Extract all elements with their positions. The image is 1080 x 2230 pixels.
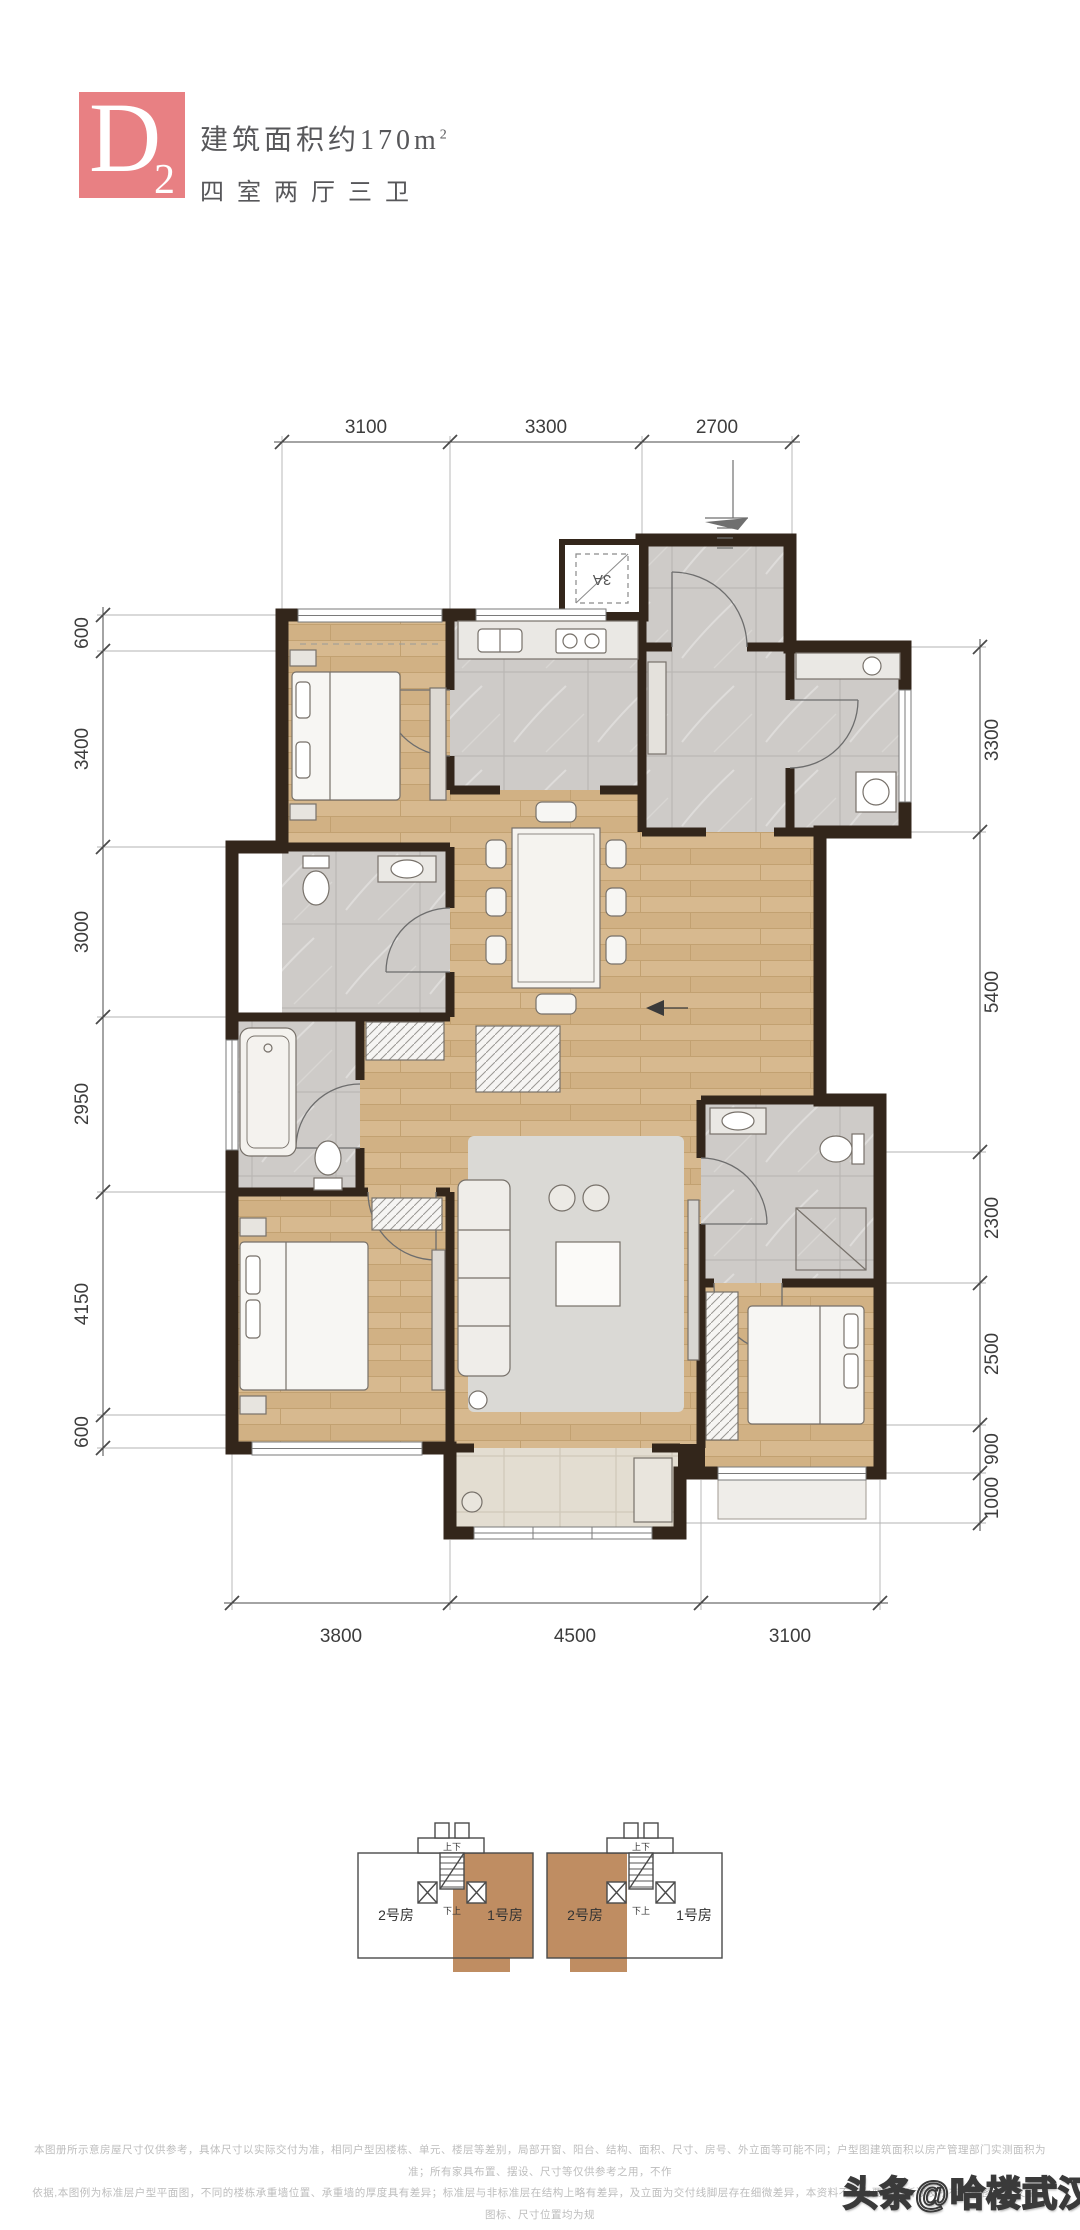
dim-right-4: 2500 <box>982 1333 1003 1375</box>
highlighted-unit <box>547 1853 627 1958</box>
stair-label-top: 上下 <box>443 1842 461 1852</box>
unit-badge: D 2 <box>79 92 185 198</box>
bathtub <box>240 1028 296 1156</box>
bedroom2-dresser <box>430 688 446 800</box>
hall-cabinet <box>476 1026 560 1092</box>
nightstand <box>240 1218 266 1236</box>
floor-lamp <box>469 1391 487 1409</box>
toilet <box>820 1136 852 1162</box>
keyplan-building-right: 上下 下上 2号房 1号房 <box>547 1823 722 1972</box>
keyplan-building-left: 上下 下上 2号房 1号房 <box>358 1823 533 1972</box>
elevator <box>467 1882 486 1903</box>
dim-left-4: 2950 <box>72 1083 93 1125</box>
elevator <box>418 1882 437 1903</box>
tv-console <box>688 1200 699 1360</box>
unit-label-4: 1号房 <box>676 1907 712 1923</box>
stair-label-bottom: 下上 <box>443 1906 461 1916</box>
bedroom3-bed <box>706 1292 864 1440</box>
plant <box>462 1492 482 1512</box>
dim-left-2: 3400 <box>72 728 93 770</box>
area-text: 建筑面积约170m2 <box>200 118 451 158</box>
flue-3a: 3A <box>562 542 642 615</box>
area-sup: 2 <box>440 128 451 143</box>
balcony-glazing <box>474 1527 652 1539</box>
linen-closet <box>366 1022 444 1060</box>
kitchen-counter <box>458 621 638 659</box>
unit-label-3: 2号房 <box>567 1907 603 1923</box>
watermark: 头条@哈楼武汉 <box>843 2166 1080 2217</box>
unit-number: 2 <box>154 156 175 204</box>
header-text: 建筑面积约170m2 四室两厅三卫 <box>200 118 451 207</box>
dim-bottom-3: 3100 <box>769 1626 811 1647</box>
master-wardrobe <box>372 1198 442 1230</box>
master-window <box>252 1442 422 1455</box>
shoe-cabinet <box>648 662 666 754</box>
dim-top-3: 2700 <box>696 417 738 438</box>
dim-right-1: 3300 <box>982 719 1003 761</box>
layout-text: 四室两厅三卫 <box>200 172 451 207</box>
dim-left-6: 600 <box>72 1416 93 1448</box>
bedroom3-wardrobe <box>706 1292 738 1440</box>
stair-label-bottom: 下上 <box>632 1906 650 1916</box>
wall-chunk <box>678 1444 705 1477</box>
washer <box>856 772 896 812</box>
highlighted-unit <box>453 1853 533 1958</box>
dim-bottom-1: 3800 <box>320 1626 362 1647</box>
unit-label-1: 2号房 <box>378 1907 414 1923</box>
nightstand <box>290 804 316 820</box>
dim-right-2: 5400 <box>982 971 1003 1013</box>
bedroom2-window <box>298 609 442 622</box>
dim-right-6: 1000 <box>982 1477 1003 1519</box>
floor-plan: 3A <box>0 400 1080 2020</box>
dim-left-5: 4150 <box>72 1283 93 1325</box>
nightstand <box>290 650 316 666</box>
unit-letter: D <box>89 78 161 198</box>
living-room-set <box>458 1136 699 1412</box>
bedroom3-bay <box>718 1479 866 1519</box>
floorplan-page: D 2 建筑面积约170m2 四室两厅三卫 <box>0 0 1080 2230</box>
flue-label: 3A <box>593 571 611 588</box>
bath2-window <box>226 1040 238 1150</box>
dim-left-1: 600 <box>72 617 93 649</box>
dim-bottom-2: 4500 <box>554 1626 596 1647</box>
nightstand <box>240 1396 266 1414</box>
toilet <box>315 1141 341 1175</box>
toilet <box>303 871 329 905</box>
dim-right-3: 2300 <box>982 1197 1003 1239</box>
balcony-cabinet <box>634 1458 672 1522</box>
stair-label-top: 上下 <box>632 1842 650 1852</box>
elevator <box>656 1882 675 1903</box>
key-plan: 上下 下上 2号房 1号房 上下 下 <box>358 1823 722 1972</box>
unit-label-2: 1号房 <box>487 1907 523 1923</box>
disclaimer-line-3: 划设计成果，仅供参考，具体以竣工备案的资料和双方的合同约定为准，本户型图所标的尺… <box>30 2226 1050 2230</box>
pouf <box>549 1185 575 1211</box>
dim-top-1: 3100 <box>345 417 387 438</box>
coffee-table <box>556 1242 620 1306</box>
utility-window <box>899 690 911 802</box>
bedroom3-window <box>718 1467 866 1480</box>
area-value: 建筑面积约170m <box>200 125 440 156</box>
dim-top-2: 3300 <box>525 417 567 438</box>
master-tv-unit <box>432 1250 445 1390</box>
kitchen-window <box>476 609 606 622</box>
elevator <box>607 1882 626 1903</box>
dim-right-5: 900 <box>982 1433 1003 1465</box>
pouf <box>583 1185 609 1211</box>
dim-left-3: 3000 <box>72 911 93 953</box>
